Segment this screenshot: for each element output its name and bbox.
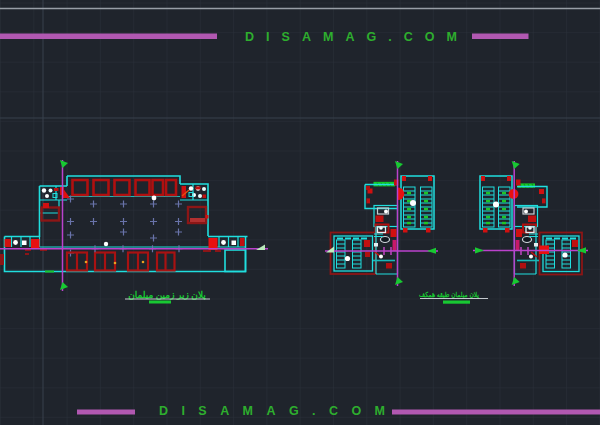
svg-text:پلان مبلمان طبقه همکف: پلان مبلمان طبقه همکف — [419, 291, 479, 299]
